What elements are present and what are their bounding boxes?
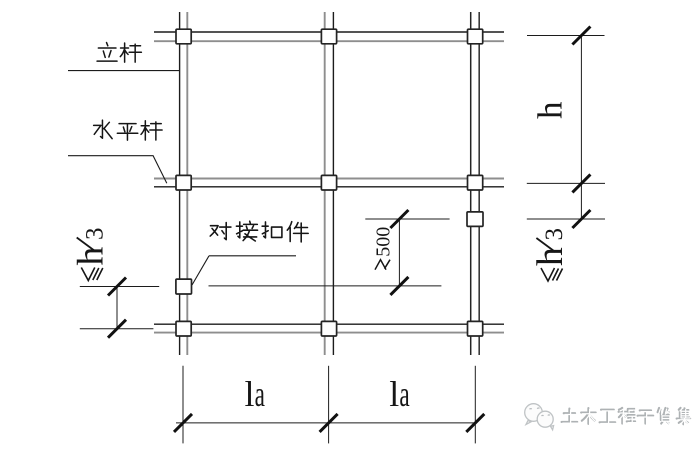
svg-text:3: 3 bbox=[541, 228, 568, 241]
svg-text:a: a bbox=[255, 374, 265, 414]
svg-text:h: h bbox=[70, 247, 111, 266]
svg-text:l: l bbox=[389, 374, 399, 414]
svg-text:h: h bbox=[530, 247, 571, 266]
svg-text:l: l bbox=[245, 374, 255, 414]
svg-text:h: h bbox=[531, 101, 570, 119]
svg-text:500: 500 bbox=[373, 227, 395, 257]
svg-text:3: 3 bbox=[81, 228, 108, 241]
svg-text:a: a bbox=[399, 374, 409, 414]
